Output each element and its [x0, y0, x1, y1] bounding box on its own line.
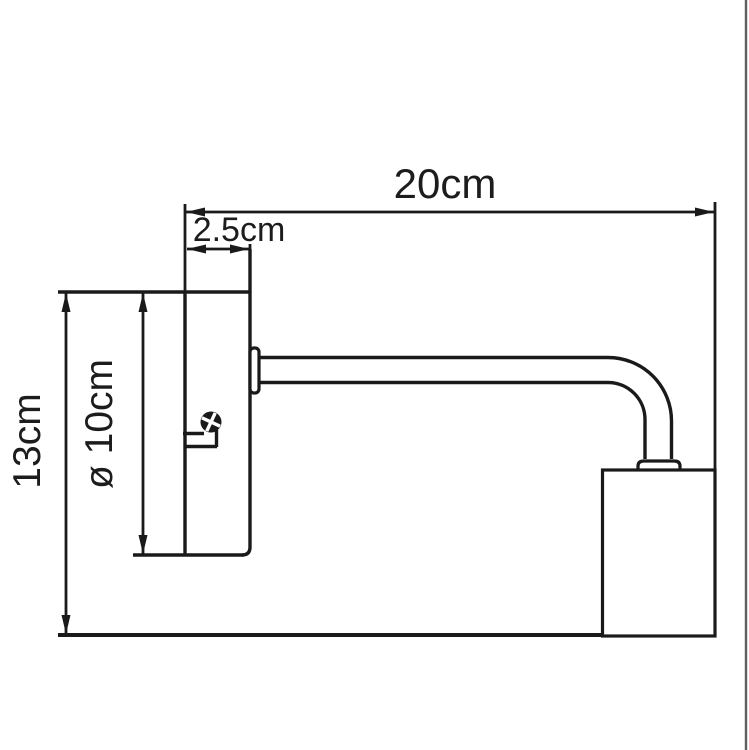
arrowhead-right-icon [695, 208, 714, 217]
arrowhead-down-icon [62, 615, 71, 634]
arrowhead-up-icon [139, 293, 148, 312]
dimension-overall-height: 13cm [6, 293, 71, 634]
dimension-overall-width: 20cm [186, 160, 714, 217]
dim-label-overall-height: 13cm [6, 393, 49, 488]
dimension-backplate-diameter: ø 10cm [78, 293, 148, 554]
wall-lamp-dimension-drawing: 20cm 2.5cm 13cm ø 10cm [0, 0, 749, 750]
dim-label-backplate-diameter: ø 10cm [78, 359, 121, 489]
keyhole-bracket [183, 430, 217, 447]
wall-backplate [185, 249, 250, 555]
technical-drawing-page: 20cm 2.5cm 13cm ø 10cm [0, 0, 749, 750]
arrowhead-up-icon [62, 293, 71, 312]
dim-label-bracket-depth: 2.5cm [193, 211, 286, 249]
mounting-screw-icon [198, 409, 225, 436]
arm-pipe-outer-edge [259, 358, 672, 460]
lamp-outline [183, 249, 715, 636]
dim-label-overall-width: 20cm [394, 160, 497, 207]
arm-mount-block [250, 348, 259, 393]
arrowhead-down-icon [139, 535, 148, 554]
backplate-right-edge [242, 249, 250, 555]
arm-pipe-inner-edge [259, 383, 645, 460]
lamp-head [603, 470, 716, 636]
arm-pipe [259, 358, 672, 460]
dimension-bracket-depth: 2.5cm [187, 211, 285, 254]
